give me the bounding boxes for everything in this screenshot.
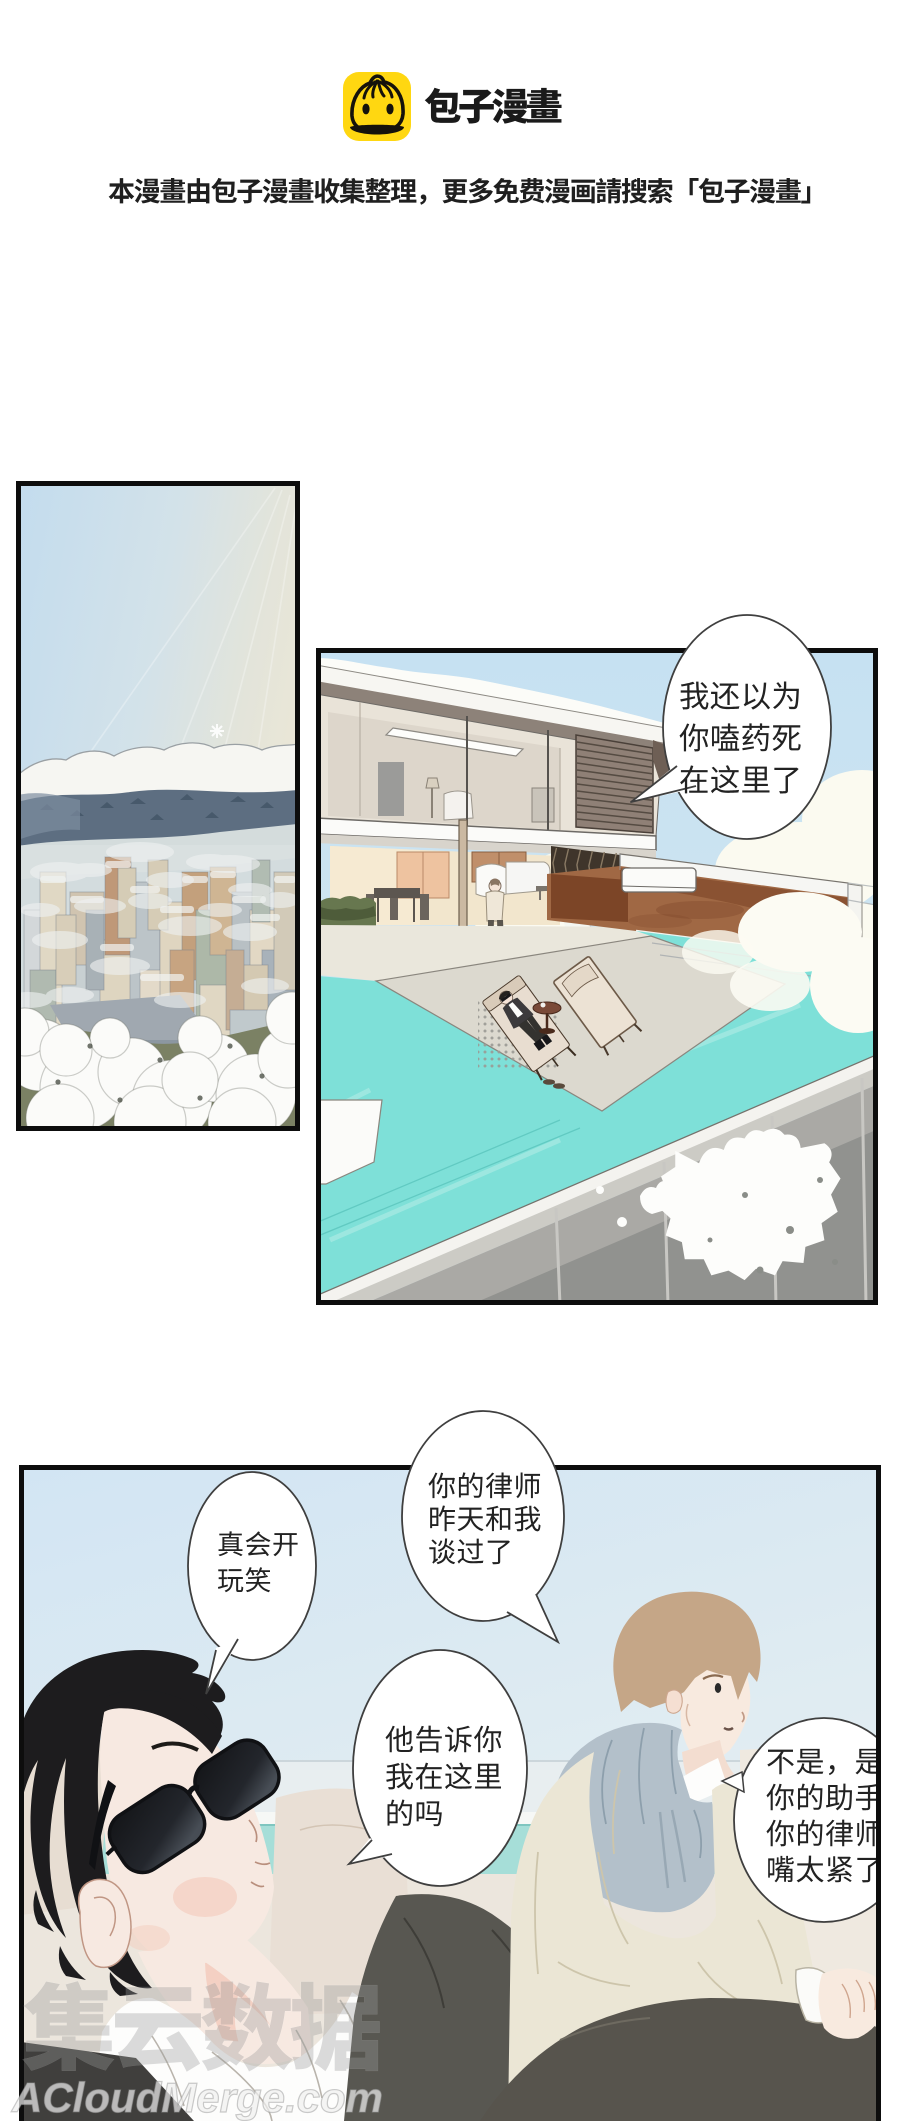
svg-text:ACloudMerge.com: ACloudMerge.com — [11, 2074, 383, 2121]
